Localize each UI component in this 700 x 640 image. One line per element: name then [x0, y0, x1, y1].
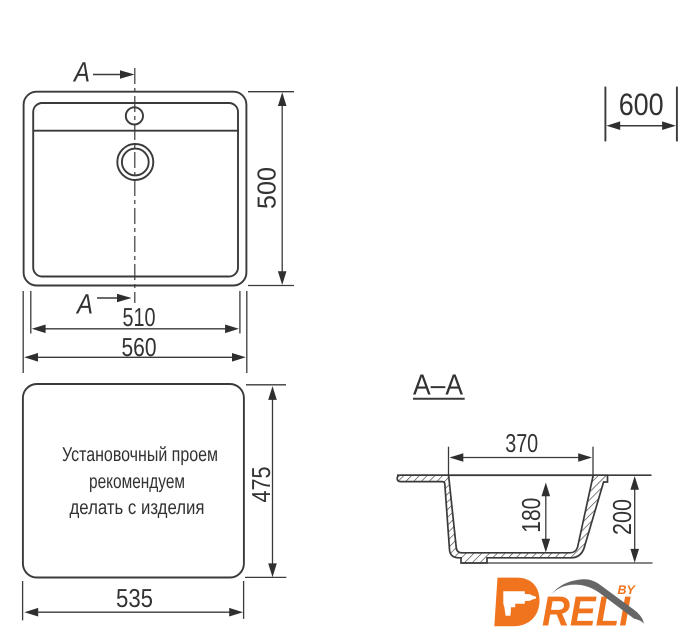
svg-text:рекомендуем: рекомендуем — [89, 471, 185, 493]
svg-text:510: 510 — [123, 302, 156, 332]
svg-text:535: 535 — [116, 583, 153, 613]
svg-text:Установочный проем: Установочный проем — [62, 444, 218, 466]
svg-text:475: 475 — [246, 467, 276, 503]
svg-text:200: 200 — [607, 499, 637, 535]
svg-text:180: 180 — [516, 498, 546, 533]
svg-text:600: 600 — [619, 87, 664, 122]
svg-text:500: 500 — [252, 167, 282, 209]
svg-text:делать с изделия: делать с изделия — [70, 497, 205, 519]
svg-text:BY: BY — [618, 583, 637, 597]
svg-text:560: 560 — [122, 332, 157, 362]
svg-text:A: A — [72, 57, 90, 88]
svg-text:A–A: A–A — [413, 370, 464, 402]
svg-text:A: A — [75, 289, 93, 320]
svg-text:370: 370 — [505, 428, 538, 458]
